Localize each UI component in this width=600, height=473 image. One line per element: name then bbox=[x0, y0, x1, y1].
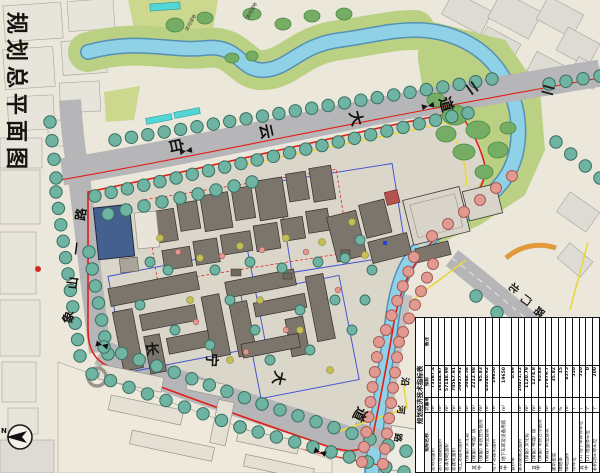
indicator-value: 19650 bbox=[492, 366, 499, 398]
indicator-value: 57148.99 bbox=[445, 366, 452, 398]
street-tree bbox=[289, 105, 301, 117]
indicator-label: 建筑密度 bbox=[552, 413, 559, 473]
indicator-value: 200 bbox=[593, 366, 600, 398]
indicator-remark bbox=[579, 317, 586, 365]
flower-tree bbox=[382, 428, 393, 439]
road-label-char: 长 bbox=[143, 341, 158, 356]
indicator-row: (2) 地面停车位个0 bbox=[586, 317, 593, 472]
street-tree bbox=[348, 132, 360, 144]
col-header: 指标名称 bbox=[425, 413, 432, 473]
flower-tree bbox=[374, 337, 385, 348]
indicator-unit: m² bbox=[452, 398, 459, 413]
street-tree bbox=[178, 401, 190, 413]
street-tree bbox=[365, 129, 377, 141]
street-tree bbox=[168, 366, 180, 378]
indicator-unit: m² bbox=[492, 398, 499, 413]
street-tree bbox=[192, 188, 204, 200]
flower-tree bbox=[397, 281, 408, 292]
indicator-value: 43040.92 bbox=[485, 366, 492, 398]
indicator-row: 容积率0.89 bbox=[511, 317, 518, 472]
indicator-label: (保留) 军民合作医院 bbox=[538, 413, 545, 463]
indicator-remark bbox=[593, 317, 600, 365]
indicator-unit: m² bbox=[566, 398, 573, 413]
street-tree bbox=[138, 200, 150, 212]
indicator-row: 其中(1) 地下车库停车位个510 bbox=[579, 317, 586, 472]
street-tree bbox=[74, 350, 86, 362]
indicator-remark bbox=[552, 317, 559, 365]
flower-tree bbox=[416, 286, 427, 297]
street-tree bbox=[215, 414, 227, 426]
indicator-remark bbox=[566, 317, 573, 365]
indicator-row: 总用地面积m²73267.4 bbox=[431, 317, 438, 472]
street-tree bbox=[246, 176, 258, 188]
flower-tree bbox=[459, 207, 470, 218]
street-tree bbox=[109, 134, 121, 146]
street-tree bbox=[207, 118, 219, 130]
flower-tree bbox=[365, 397, 376, 408]
indicator-remark bbox=[445, 317, 452, 365]
street-tree bbox=[252, 426, 264, 438]
indicator-value: 0.89 bbox=[511, 366, 518, 398]
indicator-remark bbox=[458, 317, 465, 365]
street-tree bbox=[256, 110, 268, 122]
indicator-remark bbox=[479, 317, 486, 365]
street-tree bbox=[429, 114, 441, 126]
indicator-row: 地上总建筑面积m²50917.91 bbox=[458, 317, 465, 472]
street-tree bbox=[210, 184, 222, 196]
street-tree bbox=[462, 107, 474, 119]
indicator-label: (2) 地面停车位 bbox=[586, 413, 593, 463]
indicator-unit: m² bbox=[499, 398, 511, 413]
indicator-label: 停车位 bbox=[572, 413, 579, 473]
col-header: 备注 bbox=[425, 317, 432, 365]
indicator-unit: m² bbox=[532, 398, 539, 413]
street-tree bbox=[96, 314, 108, 326]
street-tree bbox=[346, 427, 358, 439]
street-tree bbox=[251, 154, 263, 166]
street-tree bbox=[371, 91, 383, 103]
street-tree bbox=[413, 118, 425, 130]
indicator-row: 总建筑面积m²70567.91 bbox=[452, 317, 459, 472]
indicator-value: 0 bbox=[586, 366, 593, 398]
flower-tree bbox=[367, 382, 378, 393]
street-tree bbox=[221, 385, 233, 397]
street-tree bbox=[400, 445, 412, 457]
indicator-unit: % bbox=[559, 398, 566, 413]
street-tree bbox=[160, 394, 172, 406]
indicator-remark bbox=[465, 317, 472, 365]
indicator-label: 建筑基底总面积 bbox=[518, 413, 525, 473]
indicator-remark bbox=[511, 317, 518, 365]
indicator-row: (保留) 军民合作医院m²95.83 bbox=[538, 317, 545, 472]
indicator-unit: 个 bbox=[572, 398, 579, 413]
indicator-value: 19650 bbox=[499, 366, 511, 398]
indicator-unit: m² bbox=[445, 398, 452, 413]
blue-marker-dot bbox=[383, 241, 387, 245]
indicator-value: 5048.58 bbox=[465, 366, 472, 398]
indicator-table-wrap: 规划经济技术指标表指标名称计量单位指标备注总用地面积m²73267.4总代征道路… bbox=[415, 318, 600, 473]
street-tree bbox=[191, 121, 203, 133]
table-title: 规划经济技术指标表 bbox=[416, 317, 425, 472]
indicator-label: 总代征道路面积 bbox=[438, 413, 445, 473]
indicator-row: 建筑基底总面积m²20471.12 bbox=[518, 317, 525, 472]
col-header: 指标 bbox=[425, 366, 432, 398]
street-tree bbox=[92, 297, 104, 309]
street-tree bbox=[470, 290, 482, 302]
flower-tree bbox=[410, 299, 421, 310]
indicator-remark bbox=[452, 317, 459, 365]
indicator-label: 非机动车停车位 bbox=[593, 413, 600, 473]
indicator-value: 15 bbox=[559, 366, 566, 398]
street-tree bbox=[267, 150, 279, 162]
indicator-label: 地下车库及设备用房 bbox=[499, 413, 511, 463]
street-tree bbox=[202, 165, 214, 177]
indicator-label: (新建) 商业建筑 bbox=[545, 413, 552, 463]
indicator-value: 510 bbox=[572, 366, 579, 398]
indicator-table: 规划经济技术指标表指标名称计量单位指标备注总用地面积m²73267.4总代征道路… bbox=[415, 317, 600, 473]
street-tree bbox=[228, 180, 240, 192]
street-tree bbox=[274, 404, 286, 416]
street-tree bbox=[289, 436, 301, 448]
street-tree bbox=[46, 135, 58, 147]
street-tree bbox=[256, 398, 268, 410]
indicator-row: 建筑密度%35.82 bbox=[552, 317, 559, 472]
street-tree bbox=[120, 204, 132, 216]
street-tree bbox=[156, 196, 168, 208]
street-tree bbox=[55, 219, 67, 231]
col-header: 计量单位 bbox=[425, 398, 432, 413]
indicator-remark bbox=[538, 317, 545, 365]
indicator-unit: 个 bbox=[593, 398, 600, 413]
street-tree bbox=[197, 408, 209, 420]
street-tree bbox=[273, 107, 285, 119]
street-tree bbox=[174, 192, 186, 204]
flower-tree bbox=[369, 367, 380, 378]
indicator-row: (保留) 军民合作医院m²95.83 bbox=[479, 317, 486, 472]
flower-tree bbox=[427, 231, 438, 242]
street-tree bbox=[50, 186, 62, 198]
indicator-value: 95.83 bbox=[538, 366, 545, 398]
street-tree bbox=[343, 451, 355, 463]
indicator-label: 绿地面积 bbox=[566, 413, 573, 473]
street-tree bbox=[453, 78, 465, 90]
indicator-label: (保留) 啤酒厂房 bbox=[472, 413, 479, 463]
indicator-label: 地上总建筑面积 bbox=[458, 413, 465, 473]
flower-tree bbox=[428, 259, 439, 270]
indicator-unit: 个 bbox=[579, 398, 586, 413]
street-tree bbox=[71, 333, 83, 345]
road-label-char: 河 bbox=[395, 405, 405, 415]
indicator-value: 50917.91 bbox=[458, 366, 465, 398]
street-tree bbox=[98, 341, 110, 353]
street-tree bbox=[170, 172, 182, 184]
flower-tree bbox=[491, 183, 502, 194]
flower-tree bbox=[422, 272, 433, 283]
group-cell: 其中 bbox=[465, 463, 492, 473]
indicator-row: 其中(保留) 文化馆m²5048.58 bbox=[465, 317, 472, 472]
indicator-value: 1274.8 bbox=[532, 366, 539, 398]
indicator-label: (保留) 文化馆 bbox=[525, 413, 532, 463]
street-tree bbox=[338, 97, 350, 109]
indicator-label: (保留) 军民合作医院 bbox=[479, 413, 486, 463]
indicator-label: (1) 地下车库停车位 bbox=[579, 413, 586, 463]
street-tree bbox=[86, 368, 98, 380]
indicator-unit: m² bbox=[518, 398, 525, 413]
indicator-row: (新建) 商业建筑m²17979.7 bbox=[545, 317, 552, 472]
flower-tree bbox=[507, 171, 518, 182]
street-tree bbox=[270, 431, 282, 443]
street-tree bbox=[123, 381, 135, 393]
flower-tree bbox=[388, 382, 399, 393]
street-tree bbox=[44, 116, 56, 128]
indicator-unit: m² bbox=[479, 398, 486, 413]
indicator-label: (保留) 文化馆 bbox=[465, 413, 472, 463]
street-tree bbox=[550, 136, 562, 148]
indicator-remark bbox=[525, 317, 532, 365]
street-tree bbox=[306, 102, 318, 114]
street-tree bbox=[151, 360, 163, 372]
indicator-remark bbox=[545, 317, 552, 365]
street-tree bbox=[486, 73, 498, 85]
flower-tree bbox=[378, 459, 389, 470]
street-tree bbox=[420, 83, 432, 95]
indicator-unit: m² bbox=[438, 398, 445, 413]
flower-tree bbox=[409, 252, 420, 263]
indicator-label: 绿地率 bbox=[559, 413, 566, 473]
flower-tree bbox=[404, 313, 415, 324]
indicator-value: 95.83 bbox=[479, 366, 486, 398]
indicator-unit: m² bbox=[465, 398, 472, 413]
indicator-unit: m² bbox=[485, 398, 492, 413]
indicator-value: 73267.4 bbox=[431, 366, 438, 398]
indicator-remark bbox=[472, 317, 479, 365]
street-tree bbox=[292, 410, 304, 422]
street-tree bbox=[388, 89, 400, 101]
indicator-label: (新建) 商业建筑 bbox=[485, 413, 492, 463]
indicator-row: 停车位个510 bbox=[572, 317, 579, 472]
road-label-char: 沿 bbox=[399, 377, 409, 387]
indicator-remark bbox=[559, 317, 566, 365]
indicator-unit: % bbox=[552, 398, 559, 413]
street-tree bbox=[105, 186, 117, 198]
street-tree bbox=[115, 347, 127, 359]
group-cell: 其中 bbox=[525, 463, 552, 473]
indicator-unit bbox=[511, 398, 518, 413]
street-tree bbox=[437, 81, 449, 93]
street-tree bbox=[186, 373, 198, 385]
indicator-row: 总代征道路面积m²16144.67 bbox=[438, 317, 445, 472]
street-tree bbox=[283, 147, 295, 159]
road-label-char: 宁 bbox=[204, 353, 218, 367]
flower-tree bbox=[394, 337, 405, 348]
indicator-value: 8575 bbox=[566, 366, 573, 398]
group-cell: 其中 bbox=[579, 463, 593, 473]
north-label: N bbox=[1, 427, 7, 435]
street-tree bbox=[325, 446, 337, 458]
flower-tree bbox=[392, 352, 403, 363]
indicator-unit: m² bbox=[538, 398, 545, 413]
street-tree bbox=[142, 129, 154, 141]
indicator-remark bbox=[492, 317, 499, 365]
flower-tree bbox=[398, 327, 409, 338]
street-tree bbox=[48, 153, 60, 165]
indicator-remark bbox=[586, 317, 593, 365]
plan-sheet: { "sheet": { "title": "规划总平面图" }, "map":… bbox=[0, 0, 600, 473]
street-tree bbox=[322, 99, 334, 111]
indicator-remark bbox=[572, 317, 579, 365]
indicator-unit: m² bbox=[525, 398, 532, 413]
flower-tree bbox=[357, 457, 368, 468]
street-tree bbox=[565, 148, 577, 160]
street-tree bbox=[560, 75, 572, 87]
street-tree bbox=[86, 263, 98, 275]
flower-tree bbox=[371, 352, 382, 363]
street-tree bbox=[235, 157, 247, 169]
indicator-value: 510 bbox=[579, 366, 586, 398]
street-tree bbox=[89, 280, 101, 292]
group-cell: 其中 bbox=[499, 463, 511, 473]
flower-tree bbox=[443, 219, 454, 230]
street-tree bbox=[579, 160, 591, 172]
flower-tree bbox=[381, 325, 392, 336]
indicator-remark bbox=[431, 317, 438, 365]
street-tree bbox=[52, 202, 64, 214]
street-tree bbox=[328, 421, 340, 433]
indicator-row: 非机动车停车位个200 bbox=[593, 317, 600, 472]
street-tree bbox=[446, 110, 458, 122]
street-tree bbox=[300, 143, 312, 155]
indicator-value: 1120.79 bbox=[525, 366, 532, 398]
indicator-label: 容积率 bbox=[511, 413, 518, 473]
road-label-char: 路 bbox=[392, 433, 402, 443]
indicator-row: 其中(保留) 文化馆m²1120.79 bbox=[525, 317, 532, 472]
flower-tree bbox=[403, 266, 414, 277]
indicator-row: 总净用地面积m²57148.99 bbox=[445, 317, 452, 472]
indicator-row: 绿地面积m²8575 bbox=[566, 317, 573, 472]
street-tree bbox=[102, 208, 114, 220]
indicator-label: 总净用地面积 bbox=[445, 413, 452, 473]
flower-tree bbox=[384, 413, 395, 424]
street-tree bbox=[125, 131, 137, 143]
flower-tree bbox=[359, 442, 370, 453]
street-tree bbox=[158, 126, 170, 138]
street-tree bbox=[238, 392, 250, 404]
street-tree bbox=[577, 73, 589, 85]
indicator-row: 地下总建筑面积m²19650 bbox=[492, 317, 499, 472]
street-tree bbox=[240, 113, 252, 125]
street-tree bbox=[381, 125, 393, 137]
street-tree bbox=[141, 388, 153, 400]
indicator-unit: m² bbox=[545, 398, 552, 413]
indicator-value: 2212.98 bbox=[472, 366, 479, 398]
street-tree bbox=[397, 121, 409, 133]
indicator-remark bbox=[438, 317, 445, 365]
indicator-unit: m² bbox=[431, 398, 438, 413]
indicator-value: 20471.12 bbox=[518, 366, 525, 398]
indicator-row: (保留) 啤酒厂房m²1274.8 bbox=[532, 317, 539, 472]
road-label-char: 云 bbox=[257, 123, 275, 141]
street-tree bbox=[310, 416, 322, 428]
indicator-remark bbox=[499, 317, 511, 365]
indicator-remark bbox=[485, 317, 492, 365]
street-tree bbox=[154, 175, 166, 187]
indicator-value: 70567.91 bbox=[452, 366, 459, 398]
street-tree bbox=[121, 183, 133, 195]
street-tree bbox=[203, 379, 215, 391]
drawing-title: 规划总平面图 bbox=[2, 12, 34, 174]
indicator-value: 16144.67 bbox=[438, 366, 445, 398]
red-marker-dot bbox=[35, 266, 41, 272]
indicator-row: 其中地下车库及设备用房m²19650 bbox=[499, 317, 511, 472]
flower-tree bbox=[392, 295, 403, 306]
indicator-unit: m² bbox=[458, 398, 465, 413]
flower-tree bbox=[380, 443, 391, 454]
flower-tree bbox=[386, 310, 397, 321]
street-tree bbox=[404, 86, 416, 98]
indicator-label: 地下总建筑面积 bbox=[492, 413, 499, 473]
indicator-remark bbox=[532, 317, 539, 365]
flower-tree bbox=[361, 427, 372, 438]
street-tree bbox=[138, 179, 150, 191]
indicator-remark bbox=[518, 317, 525, 365]
indicator-row: (保留) 啤酒厂房m²2212.98 bbox=[472, 317, 479, 472]
road-label-char: 大 bbox=[270, 370, 287, 387]
flower-tree bbox=[475, 195, 486, 206]
road-label-char: 白 bbox=[167, 137, 185, 155]
indicator-unit: 个 bbox=[586, 398, 593, 413]
indicator-value: 35.82 bbox=[552, 366, 559, 398]
indicator-row: (新建) 商业建筑m²43040.92 bbox=[485, 317, 492, 472]
street-tree bbox=[332, 136, 344, 148]
indicator-label: (保留) 啤酒厂房 bbox=[532, 413, 539, 463]
street-tree bbox=[219, 161, 231, 173]
indicator-label: 总用地面积 bbox=[431, 413, 438, 473]
indicator-row: 绿地率%15 bbox=[559, 317, 566, 472]
street-tree bbox=[50, 172, 62, 184]
street-tree bbox=[174, 123, 186, 135]
street-tree bbox=[316, 139, 328, 151]
street-tree bbox=[234, 421, 246, 433]
indicator-label: 总建筑面积 bbox=[452, 413, 459, 473]
indicator-unit: m² bbox=[472, 398, 479, 413]
indicator-value: 17979.7 bbox=[545, 366, 552, 398]
street-tree bbox=[186, 168, 198, 180]
street-tree bbox=[104, 374, 116, 386]
street-tree bbox=[355, 94, 367, 106]
street-tree bbox=[224, 115, 236, 127]
